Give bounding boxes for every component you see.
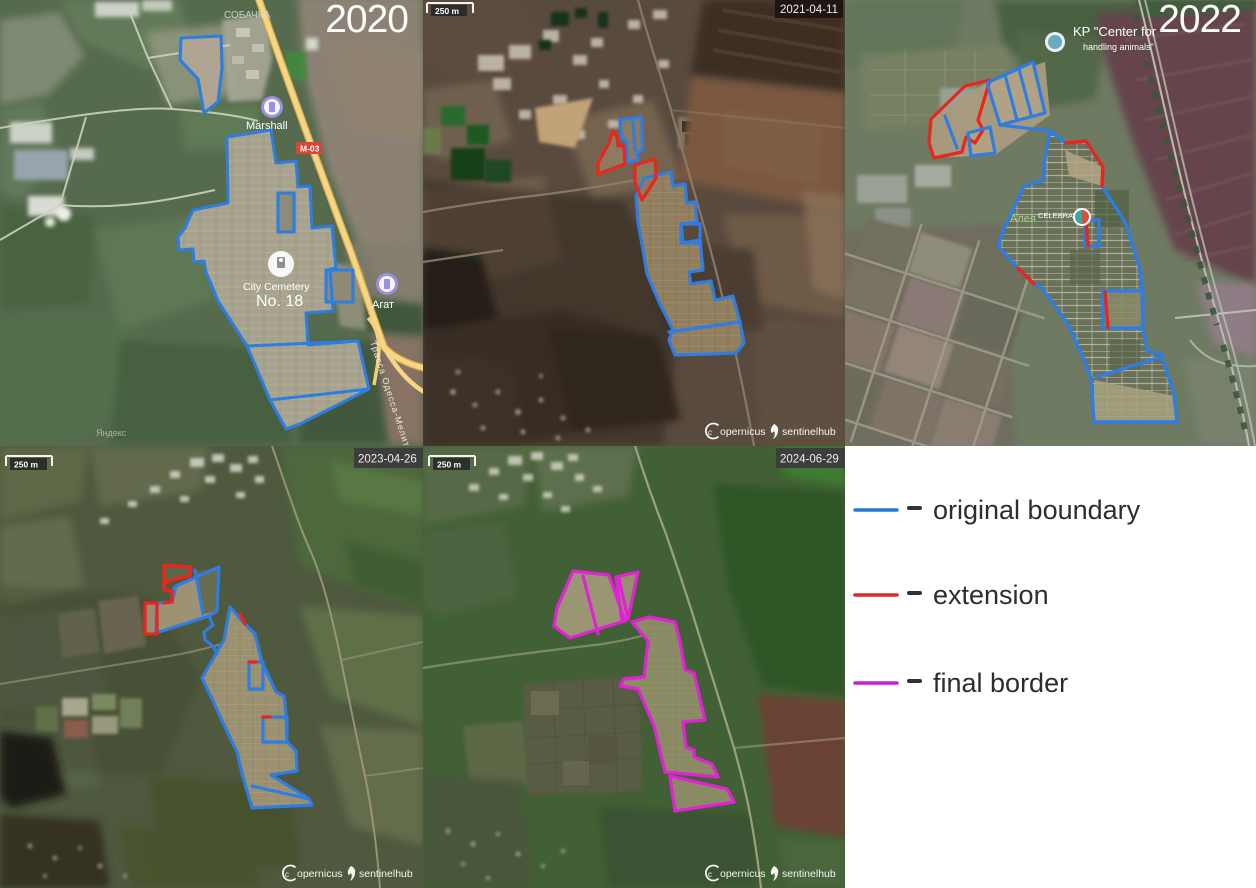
svg-text:c: c — [708, 870, 712, 879]
svg-text:final border: final border — [933, 668, 1068, 698]
svg-text:250 m: 250 m — [435, 6, 460, 16]
svg-text:sentinelhub: sentinelhub — [782, 426, 836, 438]
svg-text:Алея: Алея — [1010, 213, 1036, 225]
svg-text:extension: extension — [933, 580, 1049, 610]
svg-text:2020: 2020 — [325, 0, 408, 41]
svg-text:2023-04-26: 2023-04-26 — [358, 454, 417, 466]
svg-text:Агат: Агат — [372, 299, 394, 311]
svg-text:KP "Center for: KP "Center for — [1073, 24, 1157, 39]
svg-text:c: c — [285, 870, 289, 879]
svg-text:sentinelhub: sentinelhub — [782, 868, 836, 880]
svg-text:250 m: 250 m — [14, 460, 39, 470]
svg-text:c: c — [708, 428, 712, 437]
svg-text:2024-06-29: 2024-06-29 — [780, 454, 839, 466]
svg-text:Яндекс: Яндекс — [96, 428, 127, 438]
svg-text:СОБАЧКА: СОБАЧКА — [224, 10, 271, 21]
svg-text:2021-04-11: 2021-04-11 — [780, 4, 838, 16]
svg-text:No. 18: No. 18 — [256, 293, 303, 310]
svg-text:Marshall: Marshall — [246, 120, 288, 132]
svg-text:opernicus: opernicus — [720, 426, 766, 438]
svg-text:original boundary: original boundary — [933, 495, 1141, 525]
svg-text:sentinelhub: sentinelhub — [359, 868, 413, 880]
svg-text:2022: 2022 — [1158, 0, 1241, 41]
svg-text:250 m: 250 m — [437, 460, 462, 470]
svg-text:opernicus: opernicus — [297, 868, 343, 880]
svg-text:opernicus: opernicus — [720, 868, 766, 880]
svg-text:handling animals": handling animals" — [1083, 42, 1154, 52]
svg-text:M-03: M-03 — [300, 144, 320, 154]
svg-text:City Cemetery: City Cemetery — [243, 281, 310, 293]
